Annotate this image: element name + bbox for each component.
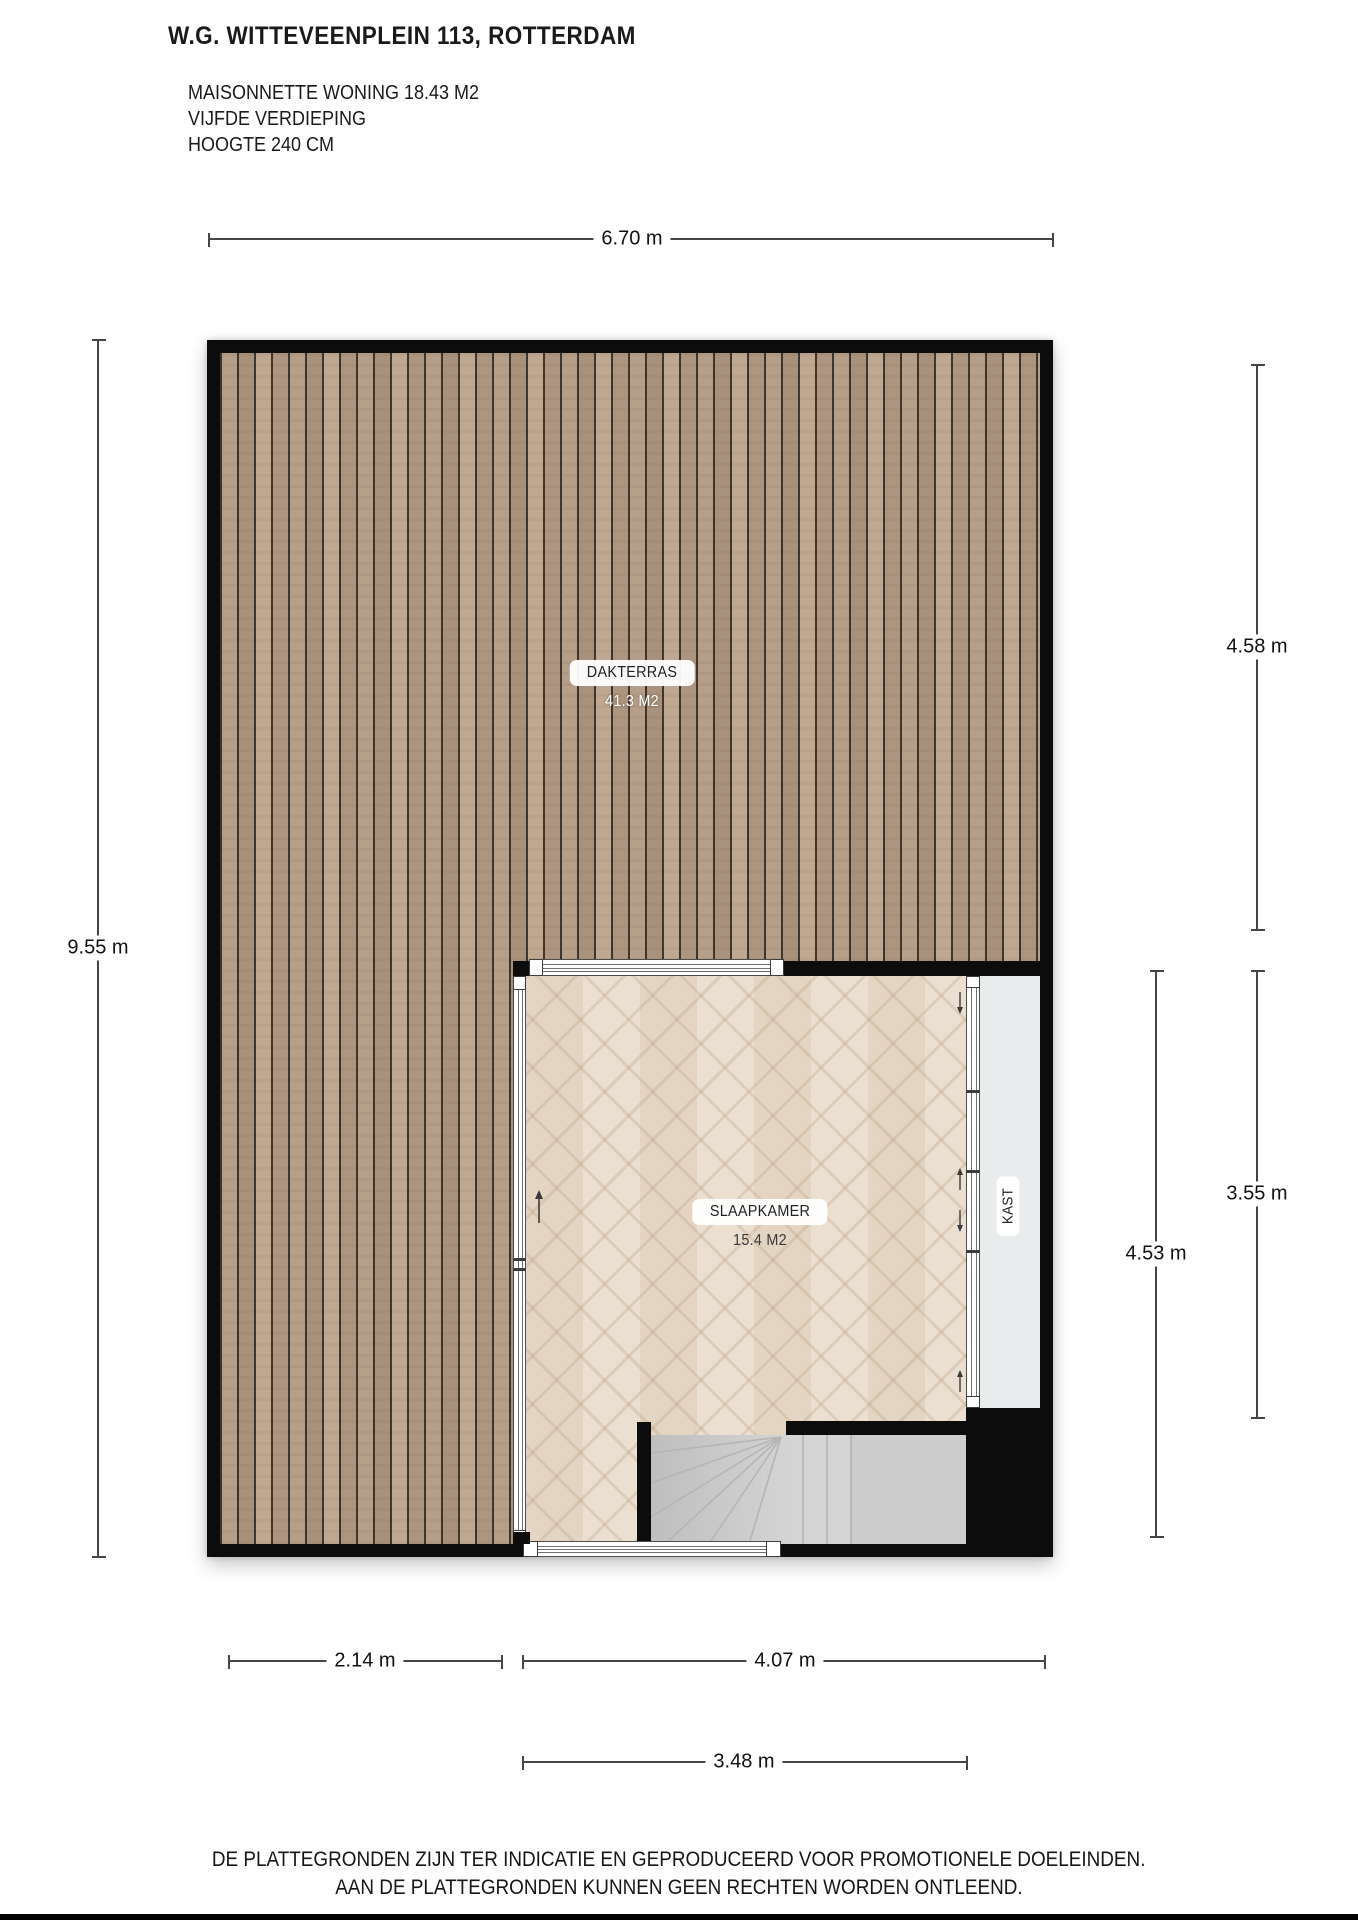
door-joint [966,1170,980,1173]
window-cap [770,959,784,976]
detail-floor: VIJFDE VERDIEPING [188,106,366,132]
stairs [651,1435,966,1544]
door-cap [966,1396,980,1408]
closet-sliding-door [966,976,980,1408]
page-title: W.G. WITTEVEENPLEIN 113, ROTTERDAM [168,22,688,51]
dimension-label-bottom-terrace: 2.14 m [326,1649,403,1674]
wall-stairs-left [637,1422,651,1544]
wall-stairs-top [786,1421,973,1435]
area-slaapkamer: 15.4 M2 [730,1232,790,1250]
stairs-drawing [651,1435,966,1544]
area-dakterras: 41.3 M2 [602,693,662,711]
bottom-border-bar [0,1914,1358,1920]
dimension-label-right-room: 3.55 m [1218,1182,1295,1207]
disclaimer-line-1: DE PLATTEGRONDEN ZIJN TER INDICATIE EN G… [0,1848,1358,1872]
dimension-label-top: 6.70 m [593,227,670,252]
label-kast: KAST [997,1176,1020,1236]
slide-arrow-icon [956,1370,964,1397]
window-cap [766,1541,781,1557]
window-joint [513,1258,526,1261]
detail-type-area: MAISONNETTE WONING 18.43 M2 [188,80,479,106]
window-cap [513,976,526,990]
property-details: MAISONNETTE WONING 18.43 M2 VIJFDE VERDI… [188,80,511,158]
door-cap [966,976,980,988]
slide-arrow-icon [956,1210,964,1237]
door-joint [966,1250,980,1253]
window-joint [513,1268,526,1271]
slide-arrow-icon [956,1168,964,1195]
floorplan-page: W.G. WITTEVEENPLEIN 113, ROTTERDAM MAISO… [0,0,1358,1920]
direction-arrow-icon [532,1190,546,1229]
floor-plan [207,340,1053,1557]
dimension-label-left: 9.55 m [59,936,136,961]
dimension-label-bottom-room: 4.07 m [746,1649,823,1674]
dimension-label-bottom-inner: 3.48 m [705,1750,782,1775]
window-bedroom-bottom [530,1541,781,1557]
slide-arrow-icon [956,992,964,1019]
label-dakterras: DAKTERRAS [570,660,695,686]
window-cap [529,959,543,976]
disclaimer-line-2: AAN DE PLATTEGRONDEN KUNNEN GEEN RECHTEN… [0,1876,1358,1900]
detail-height: HOOGTE 240 CM [188,132,334,158]
wall-corner-block [513,1532,530,1544]
label-slaapkamer: SLAAPKAMER [692,1199,827,1225]
stair-shaft-wall [966,1408,1040,1544]
dimension-label-right-total: 4.53 m [1117,1242,1194,1267]
window-terrace-bedroom [529,959,784,976]
door-joint [966,1090,980,1093]
dimension-label-right-terrace: 4.58 m [1218,635,1295,660]
